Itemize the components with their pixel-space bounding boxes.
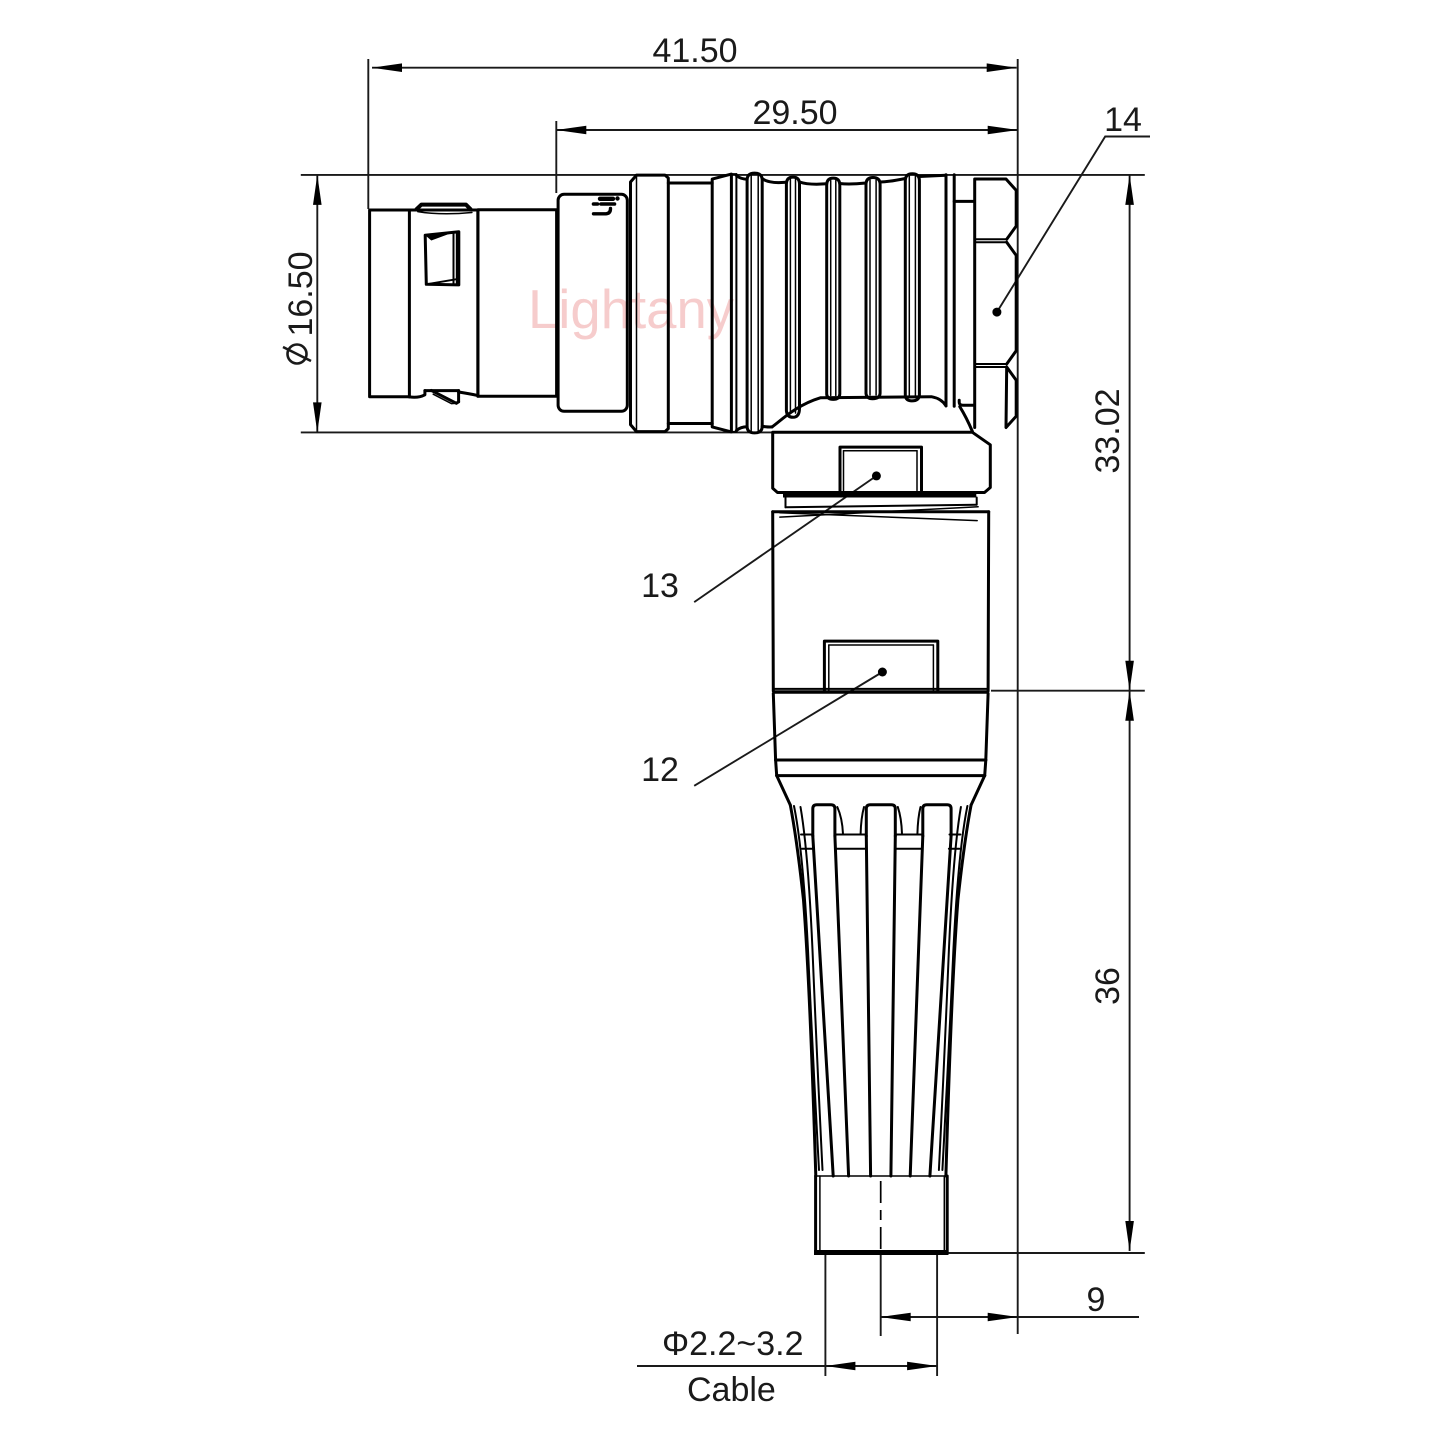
svg-text:29.50: 29.50 xyxy=(752,94,837,132)
svg-text:Φ2.2~3.2: Φ2.2~3.2 xyxy=(662,1325,804,1363)
svg-text:16.50: 16.50 xyxy=(282,251,320,336)
svg-text:41.50: 41.50 xyxy=(652,32,737,70)
svg-text:13: 13 xyxy=(641,567,679,605)
svg-text:33.02: 33.02 xyxy=(1089,388,1127,473)
svg-text:36: 36 xyxy=(1089,967,1127,1005)
svg-text:9: 9 xyxy=(1087,1281,1106,1319)
svg-text:12: 12 xyxy=(641,751,679,789)
svg-text:Cable: Cable xyxy=(687,1371,776,1409)
svg-text:14: 14 xyxy=(1104,101,1142,139)
